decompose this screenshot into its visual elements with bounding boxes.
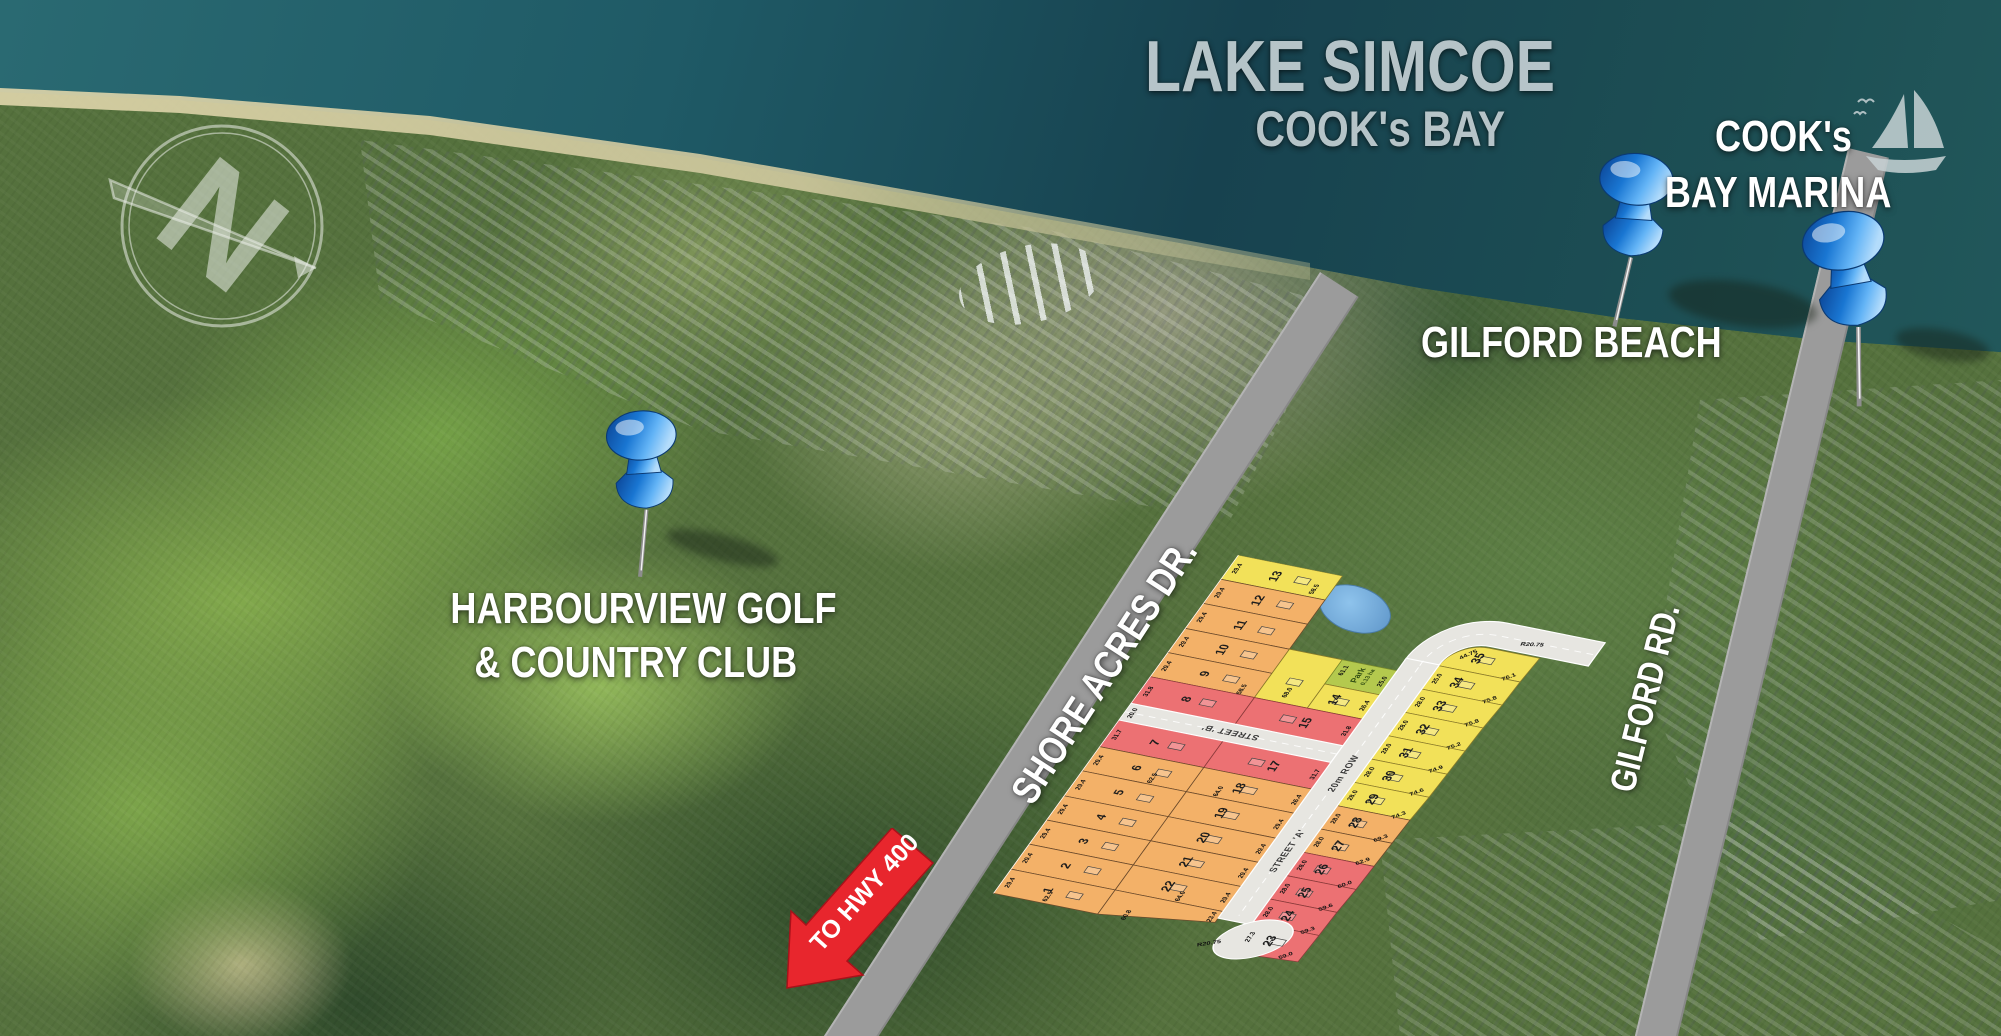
marina-text-1: COOK's <box>1715 112 1852 162</box>
cooks-bay-text: COOK's BAY <box>1255 100 1505 158</box>
marina-text-2: BAY MARINA <box>1665 168 1892 218</box>
marina-label-line2: BAY MARINA <box>1640 168 1916 218</box>
harbourview-label: HARBOURVIEW GOLF & COUNTRY CLUB <box>408 582 863 689</box>
sailboat-icon <box>1852 86 1952 181</box>
radius-label: R20.75 <box>1519 642 1545 648</box>
map-pin-golf <box>592 405 699 586</box>
lake-simcoe-text: LAKE SIMCOE <box>1145 26 1555 108</box>
lake-simcoe-label: LAKE SIMCOE <box>1080 26 1620 108</box>
north-compass-icon: N <box>104 108 344 348</box>
harbourview-text-2: & COUNTRY CLUB <box>474 636 797 690</box>
marina-label-line1: COOK's <box>1700 112 1867 162</box>
harbourview-text-1: HARBOURVIEW GOLF <box>450 582 836 636</box>
hwy-400-arrow: TO HWY 400 <box>752 828 952 1008</box>
cooks-bay-label: COOK's BAY <box>1190 100 1570 158</box>
gilford-beach-text: GILFORD BEACH <box>1421 318 1722 368</box>
compass-letter: N <box>129 125 318 324</box>
aerial-site-map: 13 12 11 10 9 8 7 6 5 4 3 2 1 14 15 17 1… <box>0 0 2001 1036</box>
gilford-beach-label: GILFORD BEACH <box>1388 318 1755 368</box>
